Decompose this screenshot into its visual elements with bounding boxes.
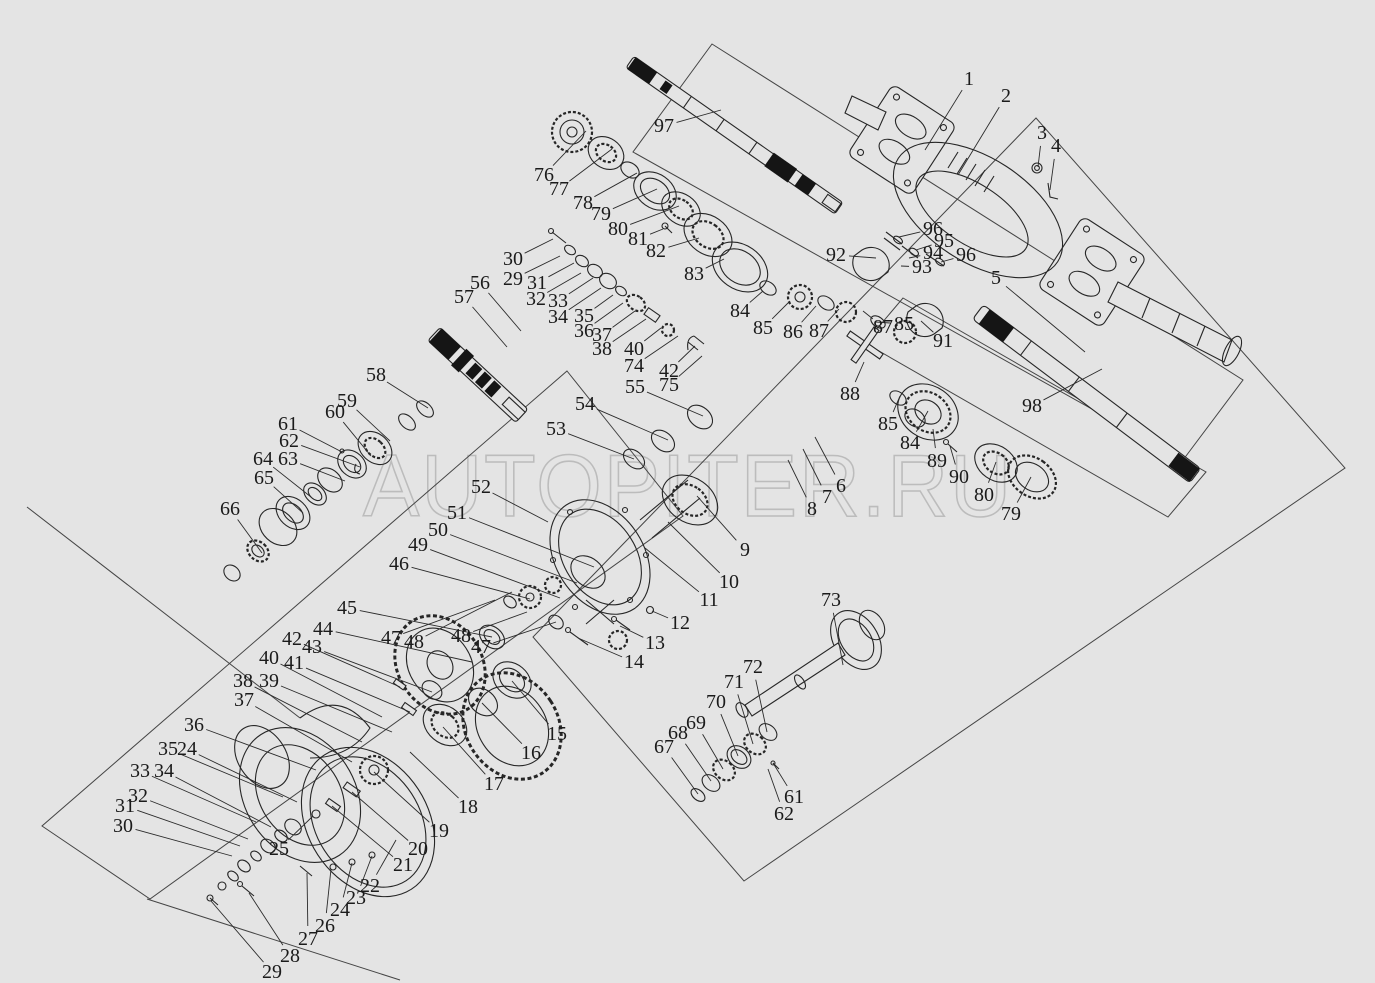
part-label-85-93: 85 — [894, 314, 914, 334]
leader-40-120 — [644, 328, 661, 341]
leader-30-29 — [136, 829, 232, 856]
leader-36-36 — [206, 729, 316, 770]
part-label-48-48: 48 — [404, 632, 424, 652]
part-label-82-86: 82 — [646, 241, 666, 261]
part-label-5-4: 5 — [991, 268, 1001, 288]
leader-82-86 — [668, 238, 699, 247]
part-label-38-38: 38 — [233, 671, 253, 691]
part-label-84-88: 84 — [730, 301, 750, 321]
part-label-81-85: 81 — [628, 229, 648, 249]
leader-56-58 — [488, 293, 521, 331]
leader-35-116 — [595, 295, 613, 308]
leader-58-60 — [387, 382, 428, 408]
part-label-80-99: 80 — [974, 485, 994, 505]
leader-83-87 — [706, 259, 724, 268]
leader-61-63 — [300, 430, 342, 452]
part-label-11-10: 11 — [699, 590, 718, 610]
part-label-88-94: 88 — [840, 384, 860, 404]
leader-12-11 — [652, 611, 668, 618]
part-label-54-56: 54 — [575, 394, 595, 414]
part-label-42-42: 42 — [282, 629, 302, 649]
part-label-8-7: 8 — [807, 499, 817, 519]
part-label-92-102: 92 — [826, 245, 846, 265]
leader-46-46 — [412, 567, 530, 599]
leader-87-92 — [863, 311, 873, 319]
part-label-84-96: 84 — [900, 433, 920, 453]
part-label-58-60: 58 — [366, 365, 386, 385]
part-label-97-108: 97 — [654, 116, 674, 136]
part-label-51-53: 51 — [447, 503, 467, 523]
part-label-53-55: 53 — [546, 419, 566, 439]
part-label-2-1: 2 — [1001, 86, 1011, 106]
part-label-96-107: 96 — [956, 245, 976, 265]
leader-81-85 — [650, 229, 663, 234]
leader-80-84 — [630, 206, 679, 224]
part-label-7-6: 7 — [822, 487, 832, 507]
part-label-41-41: 41 — [284, 653, 304, 673]
part-label-3-2: 3 — [1037, 123, 1047, 143]
part-label-35-34: 35 — [158, 739, 178, 759]
leader-30-111 — [525, 239, 553, 253]
leader-64-66 — [273, 467, 311, 497]
leader-36-117 — [595, 303, 623, 323]
leader-68-70 — [685, 744, 711, 781]
part-label-40-40: 40 — [259, 648, 279, 668]
leader-66-68 — [238, 520, 262, 553]
part-label-49-51: 49 — [408, 535, 428, 555]
part-label-83-87: 83 — [684, 264, 704, 284]
part-label-13-12: 13 — [645, 633, 665, 653]
leader-84-88 — [750, 291, 763, 302]
part-label-63-65: 63 — [278, 449, 298, 469]
part-label-29-28: 29 — [262, 962, 282, 982]
leader-49-51 — [430, 550, 560, 598]
part-label-86-90: 86 — [783, 322, 803, 342]
part-label-79-100: 79 — [1001, 504, 1021, 524]
part-label-90-98: 90 — [949, 467, 969, 487]
part-label-33-32: 33 — [130, 761, 150, 781]
leader-14-13 — [578, 638, 622, 657]
part-label-19-18: 19 — [429, 821, 449, 841]
leader-75-79 — [679, 356, 702, 376]
leader-31-112 — [548, 263, 574, 277]
leader-4-3 — [1050, 159, 1054, 190]
leader-62-77 — [768, 769, 780, 802]
part-label-46-46: 46 — [389, 554, 409, 574]
leader-78-82 — [594, 173, 637, 197]
part-label-12-11: 12 — [670, 613, 690, 633]
part-label-73-75: 73 — [821, 590, 841, 610]
part-label-85-95: 85 — [878, 414, 898, 434]
part-label-66-68: 66 — [220, 499, 240, 519]
leader-21-20 — [332, 806, 393, 857]
part-label-80-84: 80 — [608, 219, 628, 239]
part-label-30-29: 30 — [113, 816, 133, 836]
part-label-18-17: 18 — [458, 797, 478, 817]
part-label-87-92: 87 — [873, 317, 893, 337]
part-label-70-72: 70 — [706, 692, 726, 712]
leader-88-94 — [855, 362, 864, 382]
part-label-89-97: 89 — [927, 451, 947, 471]
part-label-62-77: 62 — [774, 804, 794, 824]
leader-24-35 — [199, 755, 297, 802]
part-label-4-3: 4 — [1051, 136, 1061, 156]
leader-67-69 — [672, 758, 698, 794]
part-label-64-66: 64 — [253, 449, 273, 469]
leader-85-95 — [893, 396, 900, 412]
leader-77-81 — [569, 149, 612, 181]
part-label-47-50: 47 — [471, 637, 491, 657]
part-label-36-36: 36 — [184, 715, 204, 735]
part-label-87-91: 87 — [809, 321, 829, 341]
leader-48-49 — [473, 612, 527, 632]
part-label-39-39: 39 — [259, 671, 279, 691]
part-label-72-74: 72 — [743, 657, 763, 677]
part-label-91-101: 91 — [933, 331, 953, 351]
part-label-36-117: 36 — [574, 321, 594, 341]
leader-19-18 — [374, 772, 429, 822]
part-label-98-109: 98 — [1022, 396, 1042, 416]
part-label-26-25: 26 — [315, 916, 335, 936]
part-label-38-119: 38 — [592, 339, 612, 359]
part-label-85-89: 85 — [753, 318, 773, 338]
leader-41-41 — [306, 668, 410, 712]
part-label-14-13: 14 — [624, 652, 644, 672]
part-label-57-59: 57 — [454, 287, 474, 307]
leader-47-50 — [493, 622, 556, 643]
part-label-50-52: 50 — [428, 520, 448, 540]
drawing-input-small-parts — [549, 229, 705, 351]
leader-91-101 — [921, 321, 933, 332]
leader-15-14 — [512, 681, 549, 724]
part-label-1-0: 1 — [964, 69, 974, 89]
part-label-65-67: 65 — [254, 468, 274, 488]
leader-27-26 — [307, 873, 308, 926]
leader-37-118 — [613, 311, 635, 327]
part-label-60-62: 60 — [325, 402, 345, 422]
leader-35-34 — [180, 754, 283, 797]
part-label-42-121: 42 — [659, 361, 679, 381]
leader-50-52 — [450, 535, 577, 583]
leader-38-38 — [255, 687, 362, 742]
part-label-43-43: 43 — [302, 637, 322, 657]
part-label-16-15: 16 — [521, 743, 541, 763]
leader-70-72 — [721, 714, 738, 756]
part-label-21-20: 21 — [393, 855, 413, 875]
leader-29-110 — [525, 256, 560, 273]
part-label-24-35: 24 — [177, 739, 197, 759]
part-label-9-8: 9 — [740, 540, 750, 560]
part-label-52-54: 52 — [471, 477, 491, 497]
part-label-69-71: 69 — [686, 713, 706, 733]
part-label-6-5: 6 — [836, 476, 846, 496]
part-label-71-73: 71 — [724, 672, 744, 692]
part-label-78-82: 78 — [573, 193, 593, 213]
part-label-34-33: 34 — [154, 761, 174, 781]
leader-57-59 — [472, 307, 507, 347]
leader-96-106 — [899, 232, 920, 237]
part-label-29-110: 29 — [503, 269, 523, 289]
part-label-17-16: 17 — [484, 774, 504, 794]
part-label-44-44: 44 — [313, 619, 333, 639]
leader-42-121 — [678, 346, 695, 362]
part-label-96-106: 96 — [923, 219, 943, 239]
leader-29-28 — [211, 901, 264, 962]
diagram-canvas: AUTOPITER.RU — [0, 0, 1375, 983]
part-label-45-45: 45 — [337, 598, 357, 618]
part-label-32-31: 32 — [128, 786, 148, 806]
leader-2-1 — [958, 107, 999, 175]
exploded-parts-diagram: AUTOPITER.RU — [0, 0, 1375, 983]
leader-33-114 — [569, 278, 593, 294]
part-label-10-9: 10 — [719, 572, 739, 592]
leader-63-65 — [300, 464, 345, 481]
part-label-25-24: 25 — [269, 839, 289, 859]
leader-16-15 — [482, 703, 522, 744]
leader-33-32 — [152, 776, 256, 822]
part-label-40-120: 40 — [624, 339, 644, 359]
part-label-37-37: 37 — [234, 690, 254, 710]
leader-43-43 — [324, 652, 432, 692]
leader-85-89 — [772, 301, 790, 319]
part-label-30-111: 30 — [503, 249, 523, 269]
part-label-28-27: 28 — [280, 946, 300, 966]
part-label-68-70: 68 — [668, 723, 688, 743]
part-label-47-47: 47 — [381, 628, 401, 648]
part-label-32-113: 32 — [526, 289, 546, 309]
part-label-77-81: 77 — [549, 179, 569, 199]
leader-45-45 — [360, 611, 492, 637]
leader-61-76 — [773, 763, 787, 786]
leader-18-17 — [410, 752, 459, 798]
part-label-34-115: 34 — [548, 307, 568, 327]
part-label-15-14: 15 — [547, 724, 567, 744]
part-label-55-57: 55 — [625, 377, 645, 397]
leader-11-10 — [645, 548, 699, 592]
part-label-48-49: 48 — [451, 626, 471, 646]
leader-74-78 — [645, 336, 678, 359]
part-label-27-26: 27 — [298, 929, 318, 949]
